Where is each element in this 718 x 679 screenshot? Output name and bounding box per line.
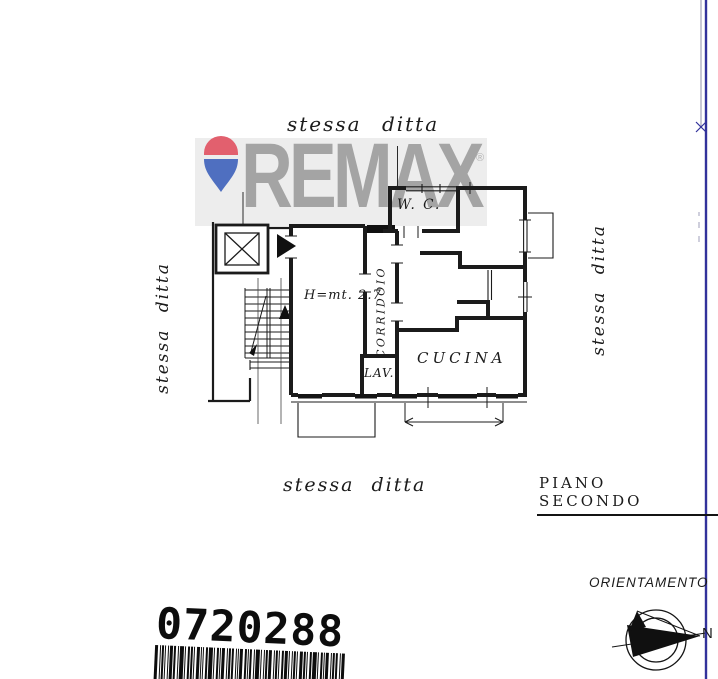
interior-door-lines xyxy=(488,270,492,300)
same-owner-label-right: stessa ditta xyxy=(589,224,609,356)
landing-window xyxy=(250,360,291,370)
north-label: N xyxy=(702,625,713,642)
room-label-laundry: LAV. xyxy=(364,366,394,380)
dimension-lines xyxy=(405,403,503,426)
room-label-wc: W. C. xyxy=(397,197,441,213)
compass-icon xyxy=(612,610,706,670)
party-wall-lines xyxy=(243,146,398,224)
main-room-walls xyxy=(289,224,365,395)
barcode: 0720288 xyxy=(153,604,371,679)
kitchen-walls xyxy=(398,300,527,332)
same-owner-label-bottom: stessa ditta xyxy=(283,474,426,496)
upper-room-walls xyxy=(420,251,527,267)
room-label-corridor: CORRIDOIO xyxy=(375,266,388,358)
ceiling-height-note: H=mt. 2.7 xyxy=(304,288,382,303)
same-owner-label-top: stessa ditta xyxy=(287,112,439,136)
cadastral-floorplan-page: REMAX ® xyxy=(0,0,718,679)
floor-label: PIANO SECONDO xyxy=(537,474,718,516)
orientation-title: ORIENTAMENTO xyxy=(589,575,709,590)
balconies xyxy=(298,213,553,437)
elevator-icon xyxy=(216,225,268,273)
entry-arrow-icon xyxy=(277,234,296,258)
same-owner-label-left: stessa ditta xyxy=(153,262,173,394)
room-label-kitchen: CUCINA xyxy=(417,349,506,367)
